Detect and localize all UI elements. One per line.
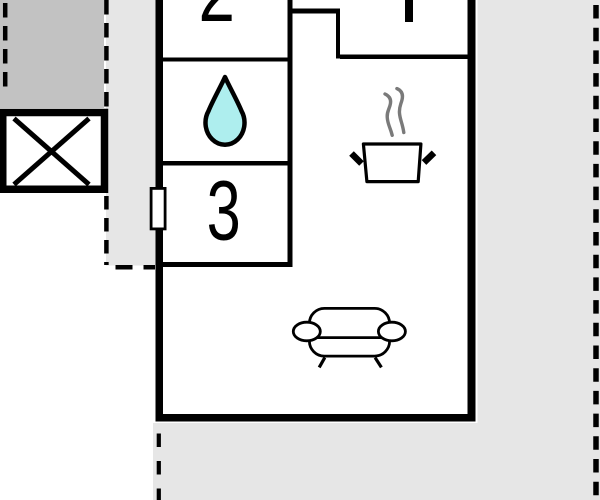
svg-text:3: 3 [207, 163, 241, 258]
svg-text:2: 2 [199, 0, 235, 39]
